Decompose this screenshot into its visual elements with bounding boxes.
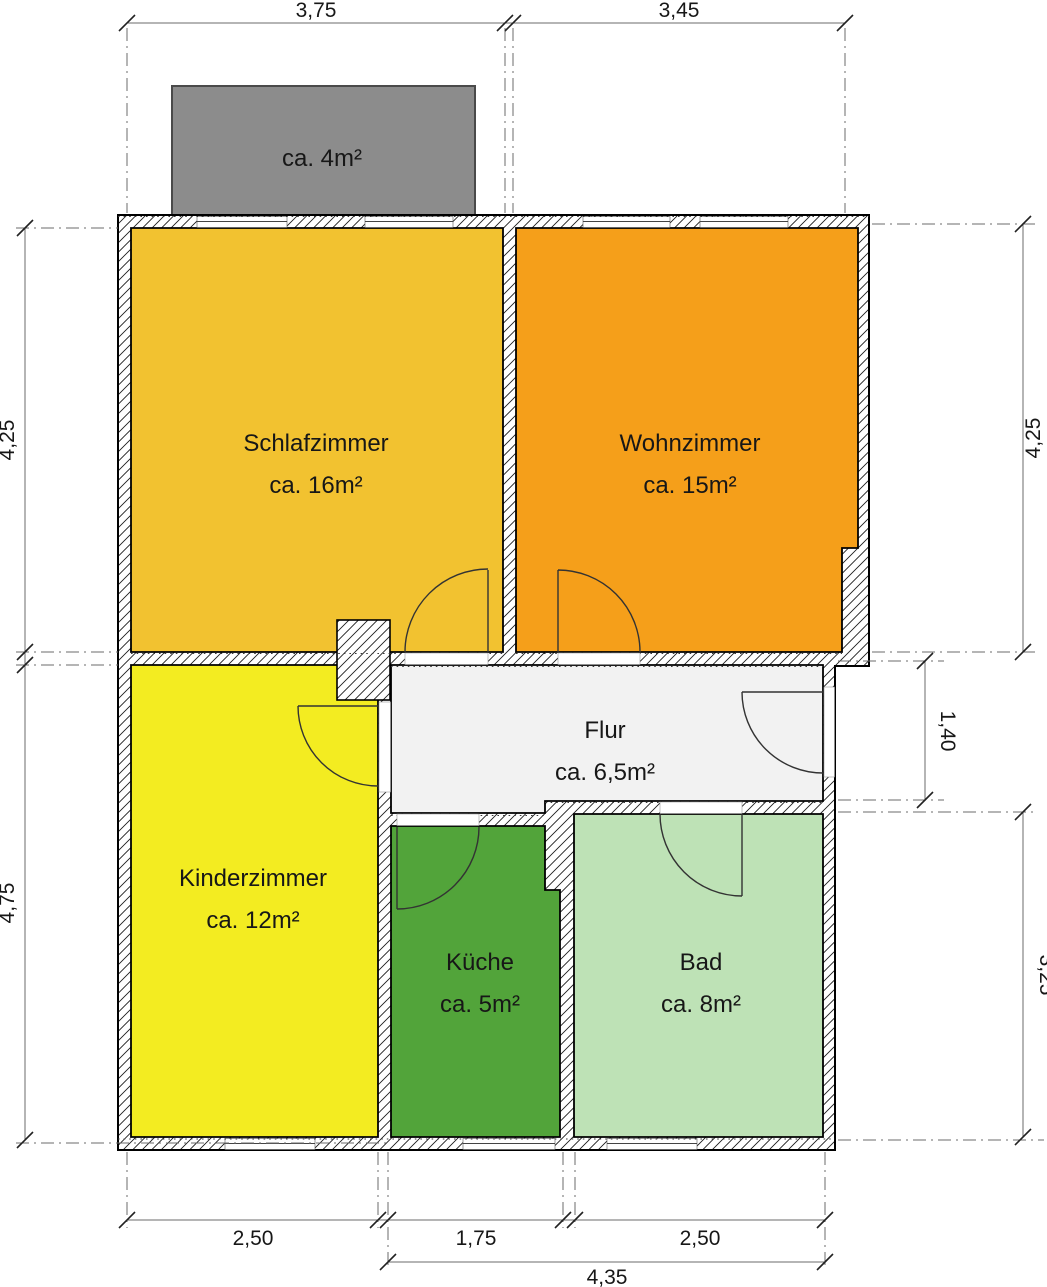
door-opening-schlafzimmer bbox=[405, 653, 488, 665]
dim-left-upper: 4,25 bbox=[0, 420, 19, 461]
door-opening-entrance bbox=[824, 687, 835, 777]
window bbox=[365, 217, 453, 228]
flur-area: ca. 6,5m² bbox=[555, 759, 655, 786]
room-kueche bbox=[391, 826, 560, 1137]
floor-plan-canvas: ca. 4m² Schla bbox=[0, 0, 1047, 1287]
dim-right-upper: 4,25 bbox=[1022, 418, 1045, 459]
dim-right-flur: 1,40 bbox=[936, 711, 959, 752]
door-opening-wohnzimmer bbox=[558, 653, 640, 665]
bad-name: Bad bbox=[680, 949, 723, 976]
wohnzimmer-area: ca. 15m² bbox=[643, 472, 736, 499]
wall-pier bbox=[337, 620, 390, 700]
balcony-area-label: ca. 4m² bbox=[282, 145, 362, 172]
dim-right-lower: 3,25 bbox=[1035, 955, 1047, 996]
kinderzimmer-name: Kinderzimmer bbox=[179, 865, 327, 892]
dim-bottom-bad: 2,50 bbox=[680, 1227, 721, 1250]
bad-area: ca. 8m² bbox=[661, 991, 741, 1018]
dim-top-right: 3,45 bbox=[659, 0, 700, 22]
wohnzimmer-name: Wohnzimmer bbox=[620, 430, 761, 457]
dim-bottom-kinderzimmer: 2,50 bbox=[233, 1227, 274, 1250]
kinderzimmer-area: ca. 12m² bbox=[206, 907, 299, 934]
dim-top-left: 3,75 bbox=[296, 0, 337, 22]
window bbox=[607, 1139, 697, 1150]
door-opening-kueche bbox=[397, 814, 479, 826]
floor-plan: ca. 4m² Schla bbox=[0, 0, 1047, 1287]
window bbox=[463, 1139, 555, 1150]
flur-name: Flur bbox=[584, 717, 625, 744]
kueche-area: ca. 5m² bbox=[440, 991, 520, 1018]
dim-bottom-kueche: 1,75 bbox=[456, 1227, 497, 1250]
kueche-name: Küche bbox=[446, 949, 514, 976]
room-kinderzimmer bbox=[131, 665, 378, 1137]
schlafzimmer-name: Schlafzimmer bbox=[243, 430, 388, 457]
window bbox=[197, 217, 287, 228]
dim-bottom-total: 4,35 bbox=[587, 1266, 628, 1287]
door-opening-kinderzimmer bbox=[379, 702, 391, 792]
window bbox=[583, 217, 670, 228]
window bbox=[225, 1139, 315, 1150]
schlafzimmer-area: ca. 16m² bbox=[269, 472, 362, 499]
door-opening-bad bbox=[660, 802, 742, 814]
balcony: ca. 4m² bbox=[172, 86, 475, 215]
window bbox=[700, 217, 788, 228]
dim-left-lower: 4,75 bbox=[0, 883, 19, 924]
